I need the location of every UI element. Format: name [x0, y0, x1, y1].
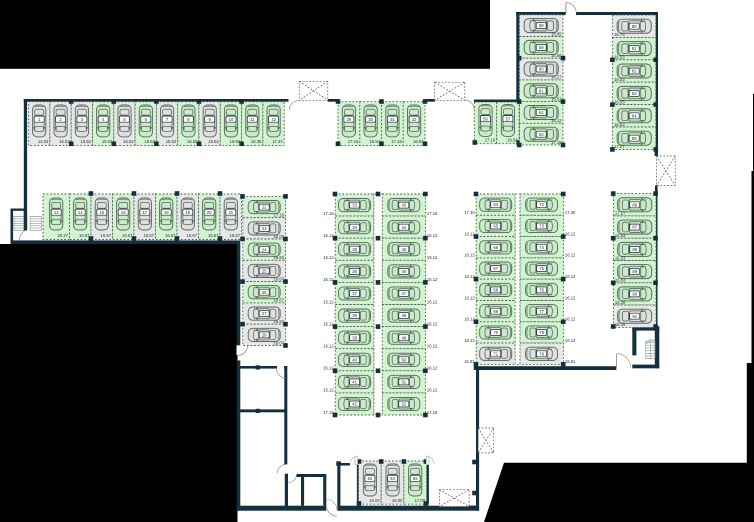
svg-text:17: 17 — [142, 210, 147, 215]
svg-text:16.35: 16.35 — [251, 139, 262, 144]
svg-text:82: 82 — [632, 69, 637, 74]
svg-text:15.52: 15.52 — [81, 139, 92, 144]
svg-text:16.12: 16.12 — [464, 317, 475, 322]
svg-text:48: 48 — [401, 313, 406, 318]
svg-text:16.12: 16.12 — [427, 366, 438, 371]
svg-text:16.12: 16.12 — [323, 299, 334, 304]
svg-text:16.53: 16.53 — [614, 99, 625, 104]
svg-text:16.12: 16.12 — [565, 274, 576, 279]
svg-text:30: 30 — [368, 117, 373, 122]
svg-text:16.67: 16.67 — [144, 233, 155, 238]
svg-text:61: 61 — [539, 88, 544, 93]
svg-text:13: 13 — [54, 210, 59, 215]
svg-text:16.12: 16.12 — [464, 231, 475, 236]
svg-text:16.00: 16.00 — [392, 498, 403, 503]
svg-text:17.16: 17.16 — [323, 211, 334, 216]
svg-text:41: 41 — [352, 380, 357, 385]
svg-text:59: 59 — [539, 45, 544, 50]
svg-text:16.54: 16.54 — [370, 139, 381, 144]
svg-text:65: 65 — [493, 224, 498, 229]
svg-text:16.12: 16.12 — [464, 338, 475, 343]
svg-text:35: 35 — [352, 247, 357, 252]
svg-text:60: 60 — [539, 67, 544, 72]
svg-text:88: 88 — [632, 247, 637, 252]
svg-text:34: 34 — [352, 225, 357, 230]
svg-text:33: 33 — [352, 203, 357, 208]
svg-text:71: 71 — [493, 351, 498, 356]
svg-text:16.12: 16.12 — [323, 344, 334, 349]
svg-text:67: 67 — [493, 266, 498, 271]
svg-text:70: 70 — [493, 330, 498, 335]
svg-text:16.65: 16.65 — [551, 31, 562, 36]
svg-text:56: 56 — [483, 116, 488, 121]
svg-text:45: 45 — [401, 247, 406, 252]
svg-text:50: 50 — [401, 357, 406, 362]
svg-text:85: 85 — [632, 136, 637, 141]
svg-text:17.16: 17.16 — [323, 410, 334, 415]
svg-text:54: 54 — [390, 476, 395, 481]
svg-text:17.16: 17.16 — [427, 410, 438, 415]
svg-text:16.12: 16.12 — [427, 344, 438, 349]
svg-text:16.53: 16.53 — [614, 77, 625, 82]
svg-text:79: 79 — [539, 351, 544, 356]
svg-text:16.12: 16.12 — [323, 321, 334, 326]
svg-text:14.04: 14.04 — [38, 139, 49, 144]
svg-text:16.86: 16.86 — [230, 139, 241, 144]
svg-text:19: 19 — [185, 210, 190, 215]
svg-text:80: 80 — [632, 24, 637, 29]
svg-text:46: 46 — [401, 269, 406, 274]
svg-text:16.53: 16.53 — [615, 233, 626, 238]
svg-text:77: 77 — [539, 309, 544, 314]
svg-text:47: 47 — [401, 291, 406, 296]
svg-text:16.53: 16.53 — [615, 255, 626, 260]
svg-text:17.27: 17.27 — [614, 144, 625, 149]
svg-text:17.37: 17.37 — [272, 139, 283, 144]
svg-text:91: 91 — [632, 314, 637, 319]
svg-text:75: 75 — [539, 266, 544, 271]
svg-text:16.12: 16.12 — [565, 231, 576, 236]
svg-text:17.16: 17.16 — [391, 139, 402, 144]
svg-text:16.12: 16.12 — [427, 277, 438, 282]
svg-text:15.52: 15.52 — [187, 139, 198, 144]
svg-text:15.81: 15.81 — [464, 359, 475, 364]
svg-text:27: 27 — [262, 311, 267, 316]
svg-text:15.52: 15.52 — [208, 139, 219, 144]
svg-text:84: 84 — [632, 113, 637, 118]
svg-text:40: 40 — [352, 357, 357, 362]
svg-text:16.67: 16.67 — [274, 276, 285, 281]
svg-text:17.30: 17.30 — [464, 210, 475, 215]
svg-text:16.67: 16.67 — [165, 233, 176, 238]
svg-text:18: 18 — [164, 210, 169, 215]
svg-text:16.54: 16.54 — [413, 139, 424, 144]
svg-text:57: 57 — [506, 116, 511, 121]
svg-text:20: 20 — [207, 210, 212, 215]
svg-text:51: 51 — [401, 380, 406, 385]
svg-text:87: 87 — [632, 225, 637, 230]
svg-text:16.00: 16.00 — [274, 234, 285, 239]
svg-text:16.67: 16.67 — [101, 233, 112, 238]
svg-text:16.67: 16.67 — [274, 319, 285, 324]
svg-text:25: 25 — [262, 269, 267, 274]
svg-text:24: 24 — [262, 247, 267, 252]
svg-text:89: 89 — [632, 269, 637, 274]
svg-text:28: 28 — [262, 333, 267, 338]
svg-text:15.52: 15.52 — [123, 139, 134, 144]
svg-text:53: 53 — [368, 476, 373, 481]
svg-text:16.53: 16.53 — [614, 55, 625, 60]
svg-text:38: 38 — [352, 313, 357, 318]
svg-text:16.67: 16.67 — [122, 233, 133, 238]
svg-text:17.30: 17.30 — [565, 210, 576, 215]
svg-text:16.12: 16.12 — [464, 253, 475, 258]
svg-text:32: 32 — [412, 117, 417, 122]
svg-text:42: 42 — [352, 402, 357, 407]
svg-text:17.16: 17.16 — [274, 213, 285, 218]
svg-text:21: 21 — [228, 210, 233, 215]
svg-text:15.81: 15.81 — [565, 359, 576, 364]
svg-text:49: 49 — [401, 335, 406, 340]
svg-text:17.16: 17.16 — [485, 137, 496, 142]
svg-text:16.12: 16.12 — [565, 338, 576, 343]
svg-text:10: 10 — [229, 117, 234, 122]
svg-text:72: 72 — [539, 202, 544, 207]
svg-text:15.52: 15.52 — [59, 139, 70, 144]
svg-text:16.27: 16.27 — [551, 75, 562, 80]
svg-text:90: 90 — [632, 292, 637, 297]
svg-text:16.63: 16.63 — [274, 255, 285, 260]
svg-text:16.12: 16.12 — [565, 317, 576, 322]
svg-text:16.67: 16.67 — [230, 233, 241, 238]
svg-text:43: 43 — [401, 203, 406, 208]
svg-text:17.16: 17.16 — [427, 211, 438, 216]
svg-text:16.67: 16.67 — [79, 233, 90, 238]
svg-text:15: 15 — [99, 210, 104, 215]
svg-text:58: 58 — [539, 23, 544, 28]
svg-text:16.12: 16.12 — [427, 255, 438, 260]
svg-text:37: 37 — [352, 291, 357, 296]
svg-text:16.12: 16.12 — [323, 366, 334, 371]
svg-text:16.12: 16.12 — [565, 253, 576, 258]
svg-text:16.12: 16.12 — [464, 274, 475, 279]
svg-text:16.12: 16.12 — [427, 388, 438, 393]
svg-text:55: 55 — [413, 476, 418, 481]
svg-text:16.12: 16.12 — [323, 255, 334, 260]
svg-text:78: 78 — [539, 330, 544, 335]
svg-text:16.67: 16.67 — [187, 233, 198, 238]
svg-text:16.12: 16.12 — [565, 295, 576, 300]
svg-text:69: 69 — [493, 309, 498, 314]
svg-text:64: 64 — [493, 202, 498, 207]
svg-text:39: 39 — [352, 335, 357, 340]
svg-text:44: 44 — [401, 225, 406, 230]
svg-text:16.12: 16.12 — [323, 233, 334, 238]
svg-text:81: 81 — [632, 46, 637, 51]
svg-text:12: 12 — [271, 117, 276, 122]
svg-text:16.12: 16.12 — [323, 388, 334, 393]
svg-text:26: 26 — [262, 290, 267, 295]
svg-text:20.27: 20.27 — [58, 233, 69, 238]
svg-text:15.52: 15.52 — [166, 139, 177, 144]
svg-text:16.12: 16.12 — [551, 118, 562, 123]
svg-text:23: 23 — [262, 226, 267, 231]
svg-text:16.53: 16.53 — [551, 96, 562, 101]
svg-text:16.12: 16.12 — [323, 277, 334, 282]
svg-text:16.53: 16.53 — [614, 122, 625, 127]
svg-text:74: 74 — [539, 245, 544, 250]
svg-text:52: 52 — [401, 402, 406, 407]
svg-text:14: 14 — [78, 210, 83, 215]
svg-text:16.00: 16.00 — [369, 498, 380, 503]
svg-text:16.53: 16.53 — [615, 278, 626, 283]
svg-text:15.52: 15.52 — [144, 139, 155, 144]
svg-text:11: 11 — [250, 117, 255, 122]
svg-text:16.12: 16.12 — [427, 321, 438, 326]
svg-text:16.66: 16.66 — [551, 53, 562, 58]
svg-text:86: 86 — [632, 202, 637, 207]
svg-text:16.12: 16.12 — [427, 299, 438, 304]
svg-text:16: 16 — [121, 210, 126, 215]
svg-text:36: 36 — [352, 269, 357, 274]
svg-text:17.18: 17.18 — [551, 140, 562, 145]
svg-text:16.12: 16.12 — [464, 295, 475, 300]
svg-text:17.27: 17.27 — [615, 211, 626, 216]
svg-text:63: 63 — [539, 132, 544, 137]
svg-text:16.67: 16.67 — [274, 298, 285, 303]
svg-text:73: 73 — [539, 224, 544, 229]
svg-text:29: 29 — [347, 117, 352, 122]
svg-text:62: 62 — [539, 110, 544, 115]
svg-text:17.16: 17.16 — [348, 139, 359, 144]
svg-text:22: 22 — [262, 205, 267, 210]
svg-text:83: 83 — [632, 91, 637, 96]
svg-text:16.12: 16.12 — [427, 233, 438, 238]
svg-text:66: 66 — [493, 245, 498, 250]
svg-text:16.20: 16.20 — [615, 300, 626, 305]
svg-text:31: 31 — [390, 117, 395, 122]
svg-text:16.75: 16.75 — [614, 32, 625, 37]
svg-text:16.15: 16.15 — [615, 322, 626, 327]
svg-text:68: 68 — [493, 288, 498, 293]
svg-text:76: 76 — [539, 288, 544, 293]
svg-text:16.67: 16.67 — [208, 233, 219, 238]
svg-text:15.52: 15.52 — [102, 139, 113, 144]
svg-text:16.07: 16.07 — [274, 340, 285, 345]
